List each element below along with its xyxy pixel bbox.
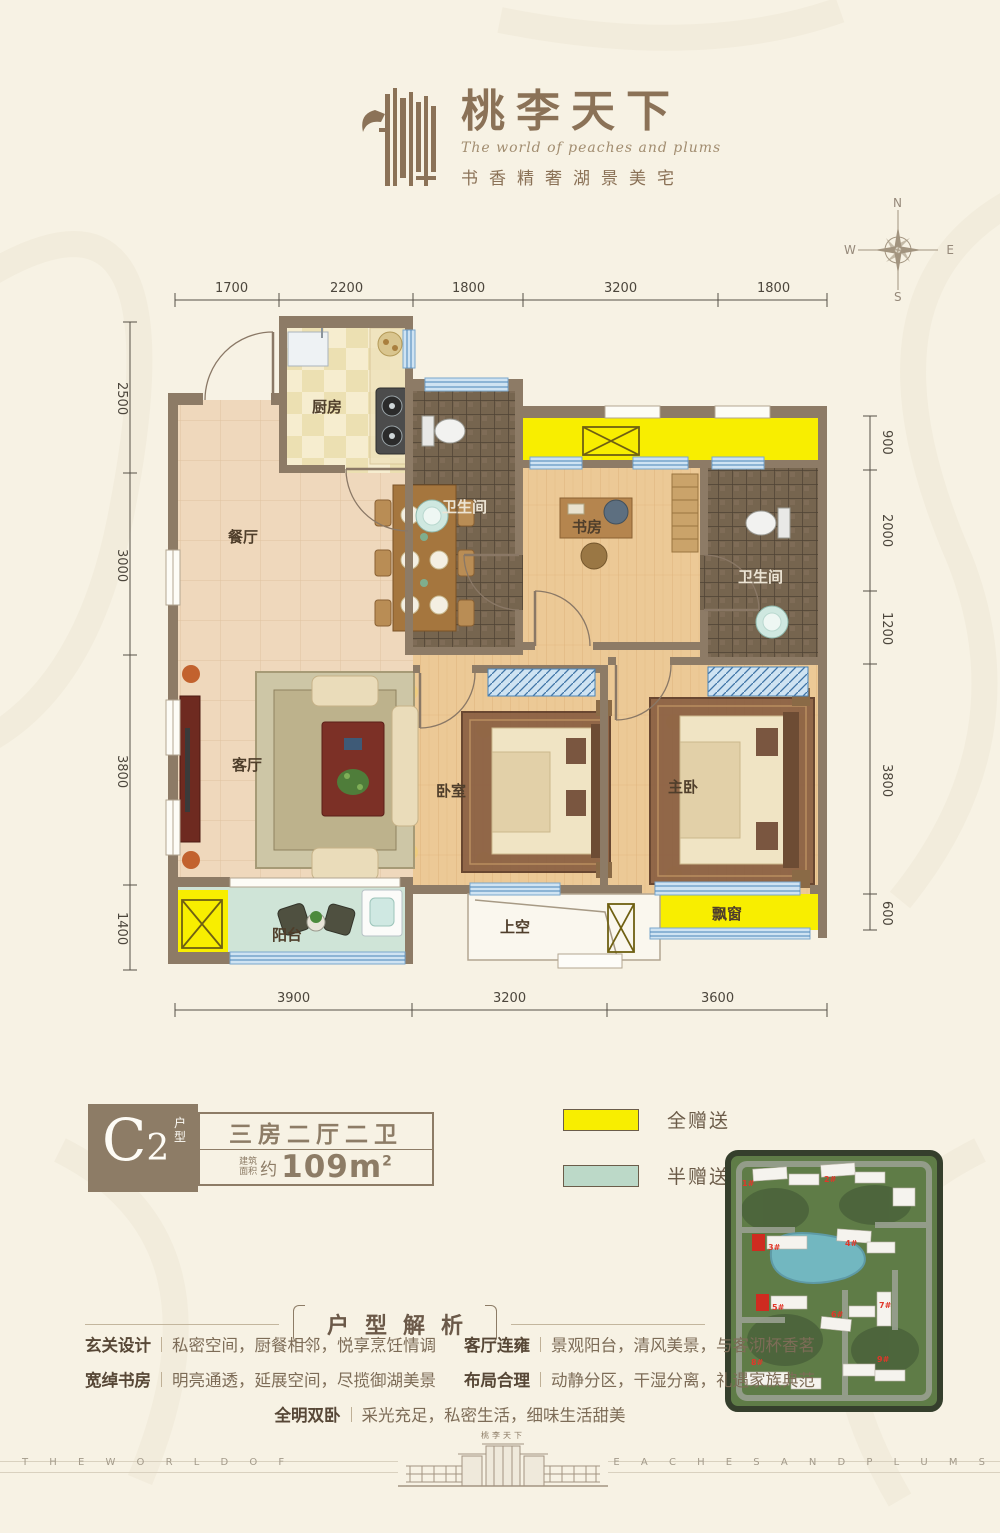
label-void: 上空 — [500, 918, 530, 936]
dim-bottom-1: 3900 — [277, 991, 310, 1006]
footer-band: T H E W O R L D O F P E A C H E S A N D … — [0, 1448, 1000, 1518]
gate-label: 桃李天下 — [398, 1430, 608, 1441]
legend-half-gift: 半赠送 — [563, 1162, 730, 1189]
window-balcony — [230, 952, 405, 964]
window-study-1 — [530, 457, 582, 469]
footer-right-text: P E A C H E S A N D P L U M S — [586, 1457, 994, 1468]
analysis-item: 玄关设计 私密空间，厨餐相邻，悦享烹饪情调 — [85, 1332, 436, 1356]
analysis-item: 全明双卧 采光充足，私密生活，细味生活甜美 — [275, 1402, 626, 1426]
dim-top-2: 2200 — [330, 281, 363, 296]
label-study: 书房 — [572, 518, 602, 536]
window-left-wall — [166, 550, 180, 855]
floor-plan: 厨房 餐厅 卫生间 书房 卫生间 客厅 卧室 主卧 阳台 上空 飘窗 — [60, 260, 960, 1050]
brand-title: 桃李天下 — [461, 88, 721, 136]
label-bedroom: 卧室 — [436, 782, 466, 800]
building-label-5: 5# — [772, 1303, 785, 1312]
full-gift-label: 全赠送 — [667, 1106, 730, 1133]
logo-tree-icon — [355, 88, 443, 192]
dim-left-3: 3800 — [114, 755, 129, 788]
gate-illustration: 桃李天下 — [398, 1430, 608, 1492]
label-bay-window: 飘窗 — [712, 905, 742, 923]
flyer-page: 桃李天下 The world of peaches and plums 书香精奢… — [0, 0, 1000, 1533]
full-gift-swatch — [563, 1109, 639, 1131]
unit-layout-text: 三房二厅二卫 — [200, 1114, 432, 1150]
label-bath2: 卫生间 — [738, 568, 783, 586]
dim-left-1: 2500 — [114, 382, 129, 415]
brand-logo: 桃李天下 The world of peaches and plums 书香精奢… — [355, 88, 721, 192]
void-area — [468, 894, 660, 968]
dim-right-5: 600 — [879, 901, 894, 926]
unit-code: C2 — [102, 1106, 169, 1174]
window-bath1 — [425, 378, 508, 391]
dim-right-3: 1200 — [879, 612, 894, 645]
footer-left-text: T H E W O R L D O F — [22, 1457, 293, 1468]
area-approx: 约 — [260, 1155, 277, 1180]
unit-tag-label: 户型 — [174, 1116, 188, 1144]
window-kitchen — [403, 330, 415, 368]
analysis-item: 宽绰书房 明亮通透，延展空间，尽揽御湖美景 — [85, 1367, 436, 1391]
window-bay-outer — [650, 928, 810, 939]
brand-subtitle-en: The world of peaches and plums — [461, 140, 721, 156]
label-master: 主卧 — [668, 778, 698, 796]
half-gift-swatch — [563, 1165, 639, 1187]
building-label-9: 9# — [877, 1355, 890, 1364]
dim-right-4: 3800 — [879, 764, 894, 797]
window-bedroom-south — [470, 883, 560, 895]
dim-right-1: 900 — [879, 430, 894, 455]
building-label-7: 7# — [879, 1301, 892, 1310]
area-value: 109m2 — [281, 1149, 393, 1185]
dim-left-2: 3000 — [114, 549, 129, 582]
unit-spec-box: 三房二厅二卫 建筑面积 约 109m2 — [198, 1112, 434, 1186]
dim-bottom-2: 3200 — [493, 991, 526, 1006]
dim-left-4: 1400 — [114, 912, 129, 945]
window-study-2 — [633, 457, 688, 469]
unit-type-badge: C2 户型 — [88, 1104, 198, 1192]
bedroom-bed — [462, 700, 612, 878]
label-bath1: 卫生间 — [442, 498, 487, 516]
building-label-1: 1# — [742, 1179, 755, 1188]
building-label-3: 3# — [768, 1243, 781, 1252]
building-label-6: 6# — [831, 1310, 844, 1319]
dim-bottom-3: 3600 — [701, 991, 734, 1006]
label-dining: 餐厅 — [228, 528, 258, 546]
analysis-list: 玄关设计 私密空间，厨餐相邻，悦享烹饪情调 客厅连雍 景观阳台，清风美景，与客沏… — [55, 1332, 845, 1437]
window-master-head — [708, 667, 808, 696]
dim-top-4: 3200 — [604, 281, 637, 296]
analysis-item: 客厅连雍 景观阳台，清风美景，与客沏杯香茗 — [464, 1332, 815, 1356]
label-kitchen: 厨房 — [312, 398, 342, 416]
brand-tagline: 书香精奢湖景美宅 — [461, 164, 721, 189]
compass-north-label: N — [893, 196, 902, 210]
balcony-sliding-door — [230, 878, 400, 887]
compass-east-label: E — [946, 243, 954, 257]
window-master-south — [655, 882, 800, 895]
area-label: 建筑面积 — [239, 1157, 257, 1177]
window-bath2 — [712, 457, 764, 469]
building-label-4: 4# — [845, 1239, 858, 1248]
dim-top-1: 1700 — [215, 281, 248, 296]
dim-right-2: 2000 — [879, 514, 894, 547]
dim-top-3: 1800 — [452, 281, 485, 296]
unit-area-row: 建筑面积 约 109m2 — [200, 1150, 432, 1184]
gift-legend: 全赠送 半赠送 — [563, 1106, 730, 1218]
half-gift-label: 半赠送 — [667, 1162, 730, 1189]
legend-full-gift: 全赠送 — [563, 1106, 730, 1133]
label-living: 客厅 — [231, 756, 262, 774]
compass-west-label: W — [844, 243, 856, 257]
analysis-item: 布局合理 动静分区，干湿分离，礼遇家族典范 — [464, 1367, 815, 1391]
dim-top-5: 1800 — [757, 281, 790, 296]
building-label-2: 2# — [824, 1175, 837, 1184]
window-bedroom-head — [488, 669, 595, 696]
label-balcony: 阳台 — [272, 926, 302, 944]
